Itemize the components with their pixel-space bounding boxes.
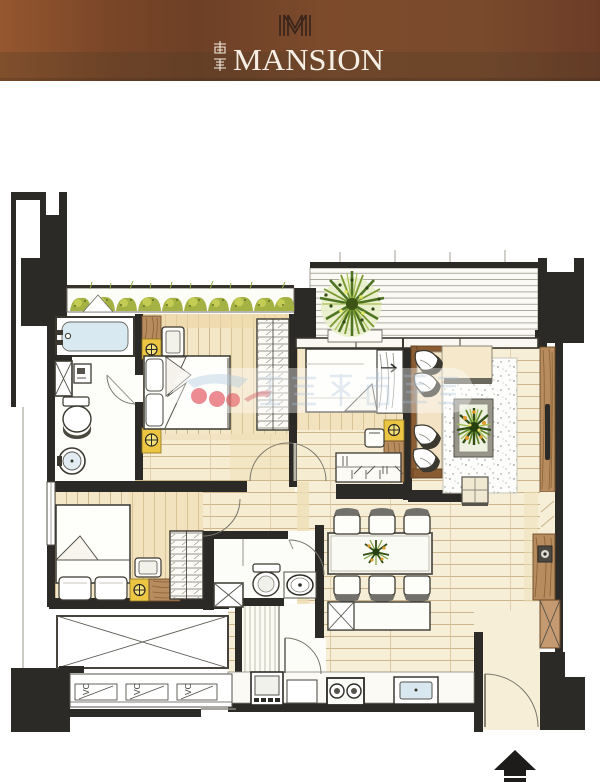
svg-text:VC: VC (81, 683, 91, 695)
svg-text:MANSION: MANSION (233, 42, 384, 77)
svg-text:VC: VC (132, 683, 142, 695)
svg-text:VC: VC (183, 683, 193, 695)
